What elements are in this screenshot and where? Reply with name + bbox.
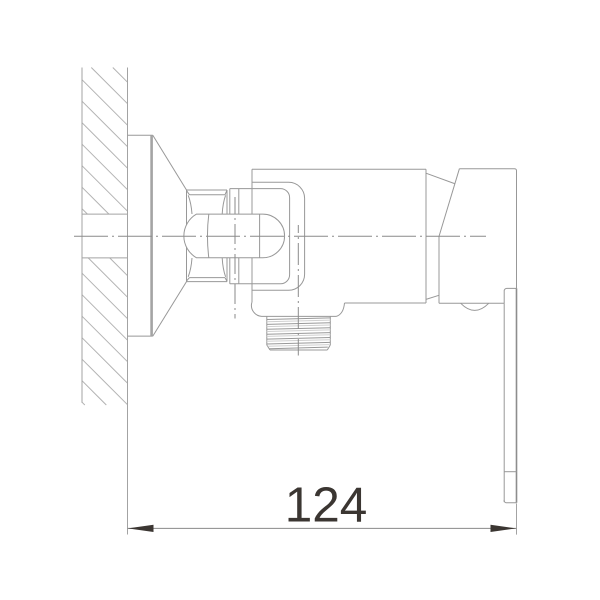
svg-text:124: 124 bbox=[285, 477, 368, 532]
